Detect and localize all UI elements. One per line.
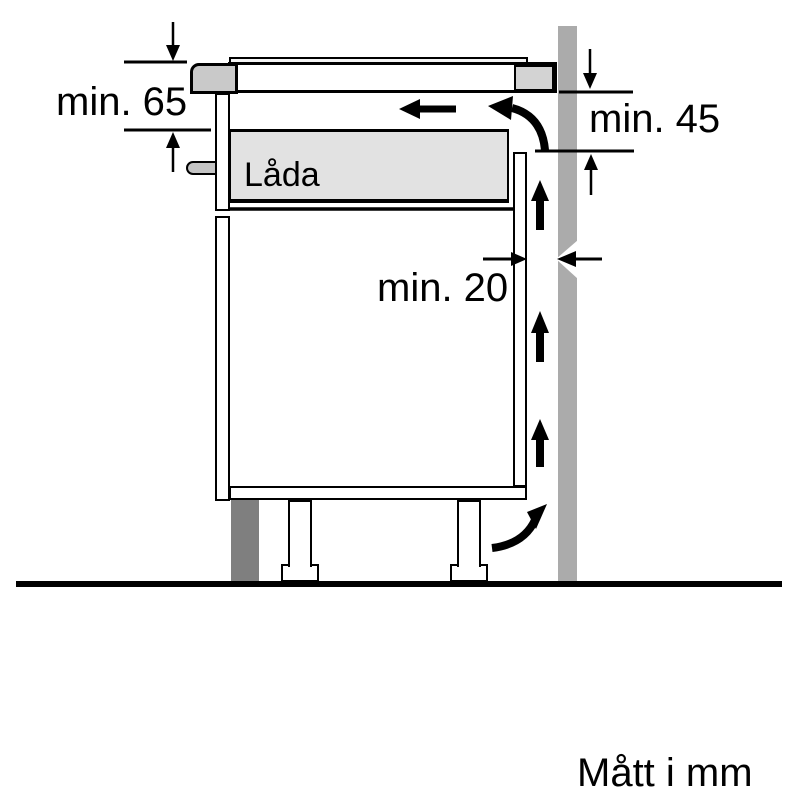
airflow-curved-arrow-bottom-head-icon	[527, 504, 547, 529]
airflow-up-arrow-2-icon	[531, 311, 549, 333]
worktop	[228, 62, 557, 93]
min65-up-arrow-icon	[166, 132, 180, 148]
drawer-label: Låda	[244, 158, 320, 192]
worktop-end-block	[514, 65, 554, 91]
min45-up-arrow-icon	[584, 154, 598, 170]
airflow-up-arrow-3-icon	[531, 419, 549, 440]
front-panel-door	[215, 216, 230, 501]
cabinet-bottom-shelf	[229, 486, 527, 500]
dimension-label-min65: min. 65	[56, 82, 187, 122]
plinth	[231, 500, 259, 582]
right-leg	[457, 500, 481, 567]
drawer-handle	[186, 161, 217, 175]
left-leg	[288, 500, 312, 567]
units-note: Mått i mm	[577, 753, 753, 793]
airflow-curved-arrow-bottom	[492, 520, 535, 548]
front-panel-upper	[215, 93, 230, 211]
airflow-curved-arrow-top-head-icon	[488, 96, 513, 120]
airflow-curved-arrow-top	[512, 108, 545, 150]
min65-down-arrow-icon	[166, 45, 180, 61]
min45-down-arrow-icon	[583, 73, 597, 89]
airflow-left-arrow-icon	[399, 99, 420, 119]
wall	[558, 26, 577, 582]
hob-front-profile	[190, 63, 238, 94]
floor-line	[16, 581, 782, 587]
installation-diagram: min. 65 min. 45 min. 20 Låda Mått i mm	[0, 0, 800, 800]
dimension-label-min20: min. 20	[377, 268, 508, 308]
dimension-label-min45: min. 45	[589, 99, 720, 139]
airflow-up-arrow-1-icon	[531, 180, 549, 201]
cabinet-back-panel	[513, 152, 527, 487]
